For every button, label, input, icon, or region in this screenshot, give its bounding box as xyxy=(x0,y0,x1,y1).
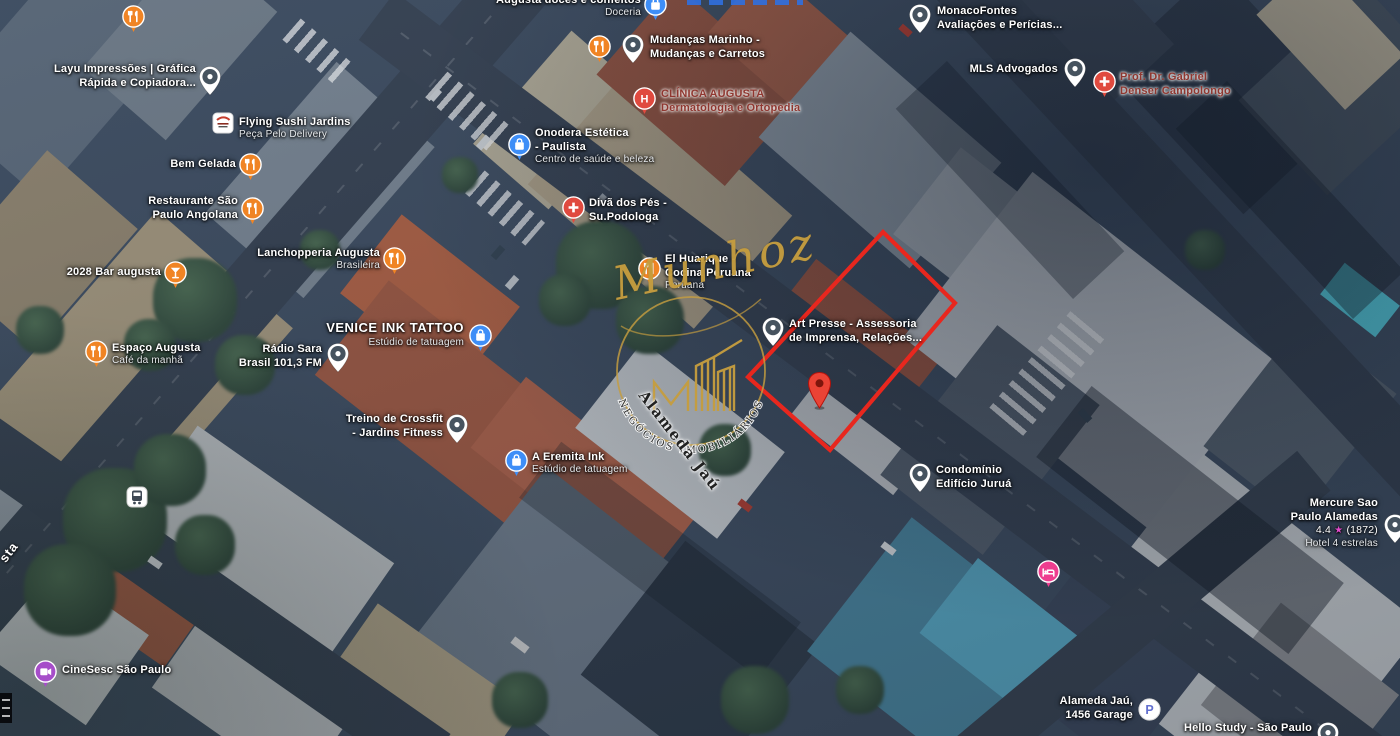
poi-mercure-sao-paulo-alamedas-label[interactable]: Mercure SaoPaulo Alamedas4.4 ★ (1872)Hot… xyxy=(1291,496,1378,551)
poi-radio-sara-brasil-label[interactable]: Rádio SaraBrasil 101,3 FM xyxy=(239,342,322,370)
poi-a-eremita-ink-label[interactable]: A Eremita InkEstúdio de tatuagem xyxy=(532,450,628,477)
poi-layu-impressoes-label[interactable]: Layu Impressões | GráficaRápida e Copiad… xyxy=(54,62,196,90)
poi-venice-ink-tattoo-icon[interactable] xyxy=(469,324,492,352)
svg-text:H: H xyxy=(640,93,648,105)
poi-food-top-left-icon[interactable] xyxy=(122,5,145,33)
poi-onodera-estetica-paulista-label[interactable]: Onodera Estética- PaulistaCentro de saúd… xyxy=(535,126,654,167)
poi-cinesesc-sao-paulo-label[interactable]: CineSesc São Paulo xyxy=(62,663,171,677)
poi-prof-dr-gabriel-denser-campolongo-icon[interactable] xyxy=(1093,70,1116,98)
poi-lanchopperia-augusta-label[interactable]: Lanchopperia AugustaBrasileira xyxy=(257,246,380,273)
poi-bem-gelada-label[interactable]: Bem Gelada xyxy=(170,157,236,171)
poi-condominio-edificio-jurua-icon[interactable] xyxy=(907,462,933,494)
poi-espaco-augusta-icon[interactable] xyxy=(85,340,108,368)
poi-alameda-jau-1456-garage-icon[interactable]: P xyxy=(1138,698,1161,721)
poi-augusta-doces-e-confeitos-label[interactable]: Augusta doces e confeitosDoceria xyxy=(496,0,641,20)
clipped-label-top xyxy=(687,0,803,5)
poi-onodera-estetica-paulista-icon[interactable] xyxy=(508,133,531,161)
poi-monacofontes-icon[interactable] xyxy=(907,3,933,35)
poi-prof-dr-gabriel-denser-campolongo-label[interactable]: Prof. Dr. GabrielDenser Campolongo xyxy=(1120,70,1231,98)
poi-lanchopperia-augusta-icon[interactable] xyxy=(383,247,406,275)
poi-hotel-poi-icon[interactable] xyxy=(1037,560,1060,588)
attribution-box xyxy=(0,693,12,723)
poi-espaco-augusta-label[interactable]: Espaço AugustaCafé da manhã xyxy=(112,341,201,368)
poi-flying-sushi-jardins-label[interactable]: Flying Sushi JardinsPeça Pelo Delivery xyxy=(239,115,351,142)
poi-restaurante-sao-paulo-angolana-icon[interactable] xyxy=(241,197,264,225)
poi-bus-stop-icon[interactable] xyxy=(126,486,148,508)
map-canvas[interactable]: sta NEGÓCIOS IMOBILIÁRIOS Munhoz Alameda… xyxy=(0,0,1400,736)
poi-art-presse-icon[interactable] xyxy=(760,316,786,348)
poi-a-eremita-ink-icon[interactable] xyxy=(505,449,528,477)
poi-hello-study-sao-paulo-icon[interactable] xyxy=(1315,721,1341,736)
poi-treino-de-crossfit-jardins-fitness-icon[interactable] xyxy=(444,413,470,445)
poi-flying-sushi-jardins-icon[interactable] xyxy=(212,112,234,134)
poi-mls-advogados-icon[interactable] xyxy=(1062,57,1088,89)
poi-venice-ink-tattoo-label[interactable]: VENICE INK TATTOOEstúdio de tatuagem xyxy=(326,320,464,349)
svg-text:P: P xyxy=(1145,703,1153,717)
rating-star-icon: ★ xyxy=(1334,525,1343,536)
poi-mls-advogados-label[interactable]: MLS Advogados xyxy=(970,62,1058,76)
poi-diva-dos-pes-su-podologa-icon[interactable] xyxy=(562,196,585,224)
poi-art-presse-label[interactable]: Art Presse - Assessoriade Imprensa, Rela… xyxy=(789,317,922,345)
poi-food-near-mudancas-icon[interactable] xyxy=(588,35,611,63)
poi-bar-2028-augusta-label[interactable]: 2028 Bar augusta xyxy=(67,265,161,279)
selected-location-marker[interactable] xyxy=(806,371,833,411)
poi-cinesesc-sao-paulo-icon[interactable] xyxy=(34,660,57,688)
poi-clinica-augusta-icon[interactable]: H xyxy=(633,87,656,115)
poi-restaurante-sao-paulo-angolana-label[interactable]: Restaurante SãoPaulo Angolana xyxy=(148,194,238,222)
poi-monacofontes-label[interactable]: MonacoFontesAvaliações e Perícias... xyxy=(937,4,1062,32)
poi-augusta-doces-e-confeitos-icon[interactable] xyxy=(644,0,667,21)
poi-condominio-edificio-jurua-label[interactable]: CondomínioEdifício Juruá xyxy=(936,463,1012,491)
poi-alameda-jau-1456-garage-label[interactable]: Alameda Jaú,1456 Garage xyxy=(1060,694,1133,722)
poi-treino-de-crossfit-jardins-fitness-label[interactable]: Treino de Crossfit- Jardins Fitness xyxy=(346,412,443,440)
poi-mudancas-marinho-label[interactable]: Mudanças Marinho -Mudanças e Carretos xyxy=(650,33,765,61)
poi-el-huarique-cocina-peruana-icon[interactable] xyxy=(638,257,661,285)
poi-el-huarique-cocina-peruana-label[interactable]: El Huarique -Cocina PeruanaPeruana xyxy=(665,252,751,293)
poi-mudancas-marinho-icon[interactable] xyxy=(620,33,646,65)
poi-hello-study-sao-paulo-label[interactable]: Hello Study - São Paulo xyxy=(1184,721,1312,735)
poi-bar-2028-augusta-icon[interactable] xyxy=(164,261,187,289)
poi-diva-dos-pes-su-podologa-label[interactable]: Divã dos Pés -Su.Podologa xyxy=(589,196,667,224)
poi-clinica-augusta-label[interactable]: CLÍNICA AUGUSTADermatologia e Ortopedia xyxy=(661,87,800,115)
poi-mercure-sao-paulo-alamedas-icon[interactable] xyxy=(1382,513,1400,545)
poi-bem-gelada-icon[interactable] xyxy=(239,153,262,181)
poi-layu-impressoes-icon[interactable] xyxy=(197,65,223,97)
